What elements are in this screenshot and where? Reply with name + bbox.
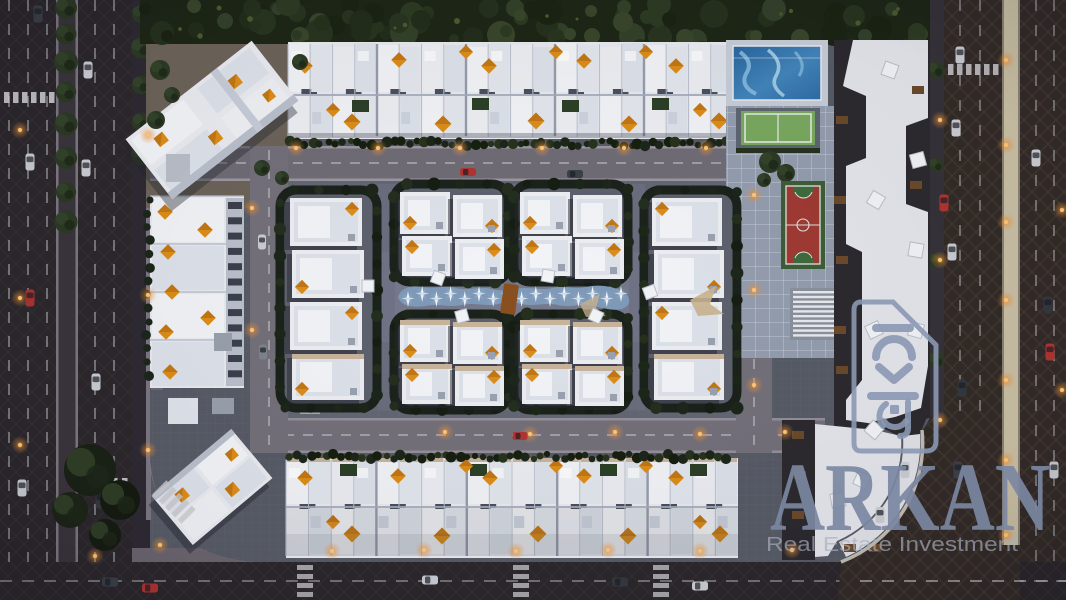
svg-text:Real Estate Investment: Real Estate Investment: [766, 534, 1019, 556]
